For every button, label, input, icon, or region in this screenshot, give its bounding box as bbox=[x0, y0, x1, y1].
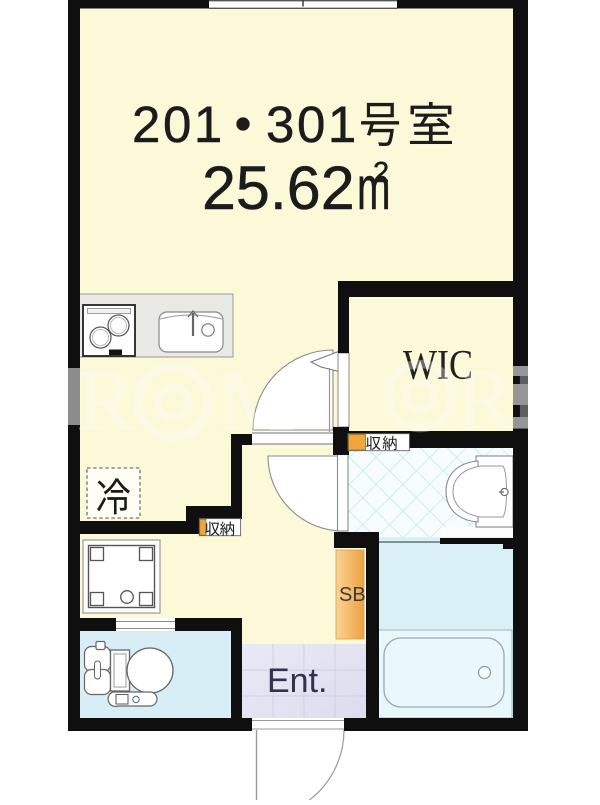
svg-text:SB: SB bbox=[339, 584, 366, 606]
svg-text:R: R bbox=[455, 352, 514, 449]
svg-text:301: 301 bbox=[266, 96, 359, 153]
svg-text:M: M bbox=[218, 353, 296, 450]
svg-text:201: 201 bbox=[132, 96, 225, 153]
svg-text:Ent.: Ent. bbox=[267, 662, 327, 700]
svg-text:R: R bbox=[76, 353, 135, 450]
svg-text:2: 2 bbox=[373, 157, 389, 189]
svg-text:25.62: 25.62 bbox=[202, 154, 355, 222]
